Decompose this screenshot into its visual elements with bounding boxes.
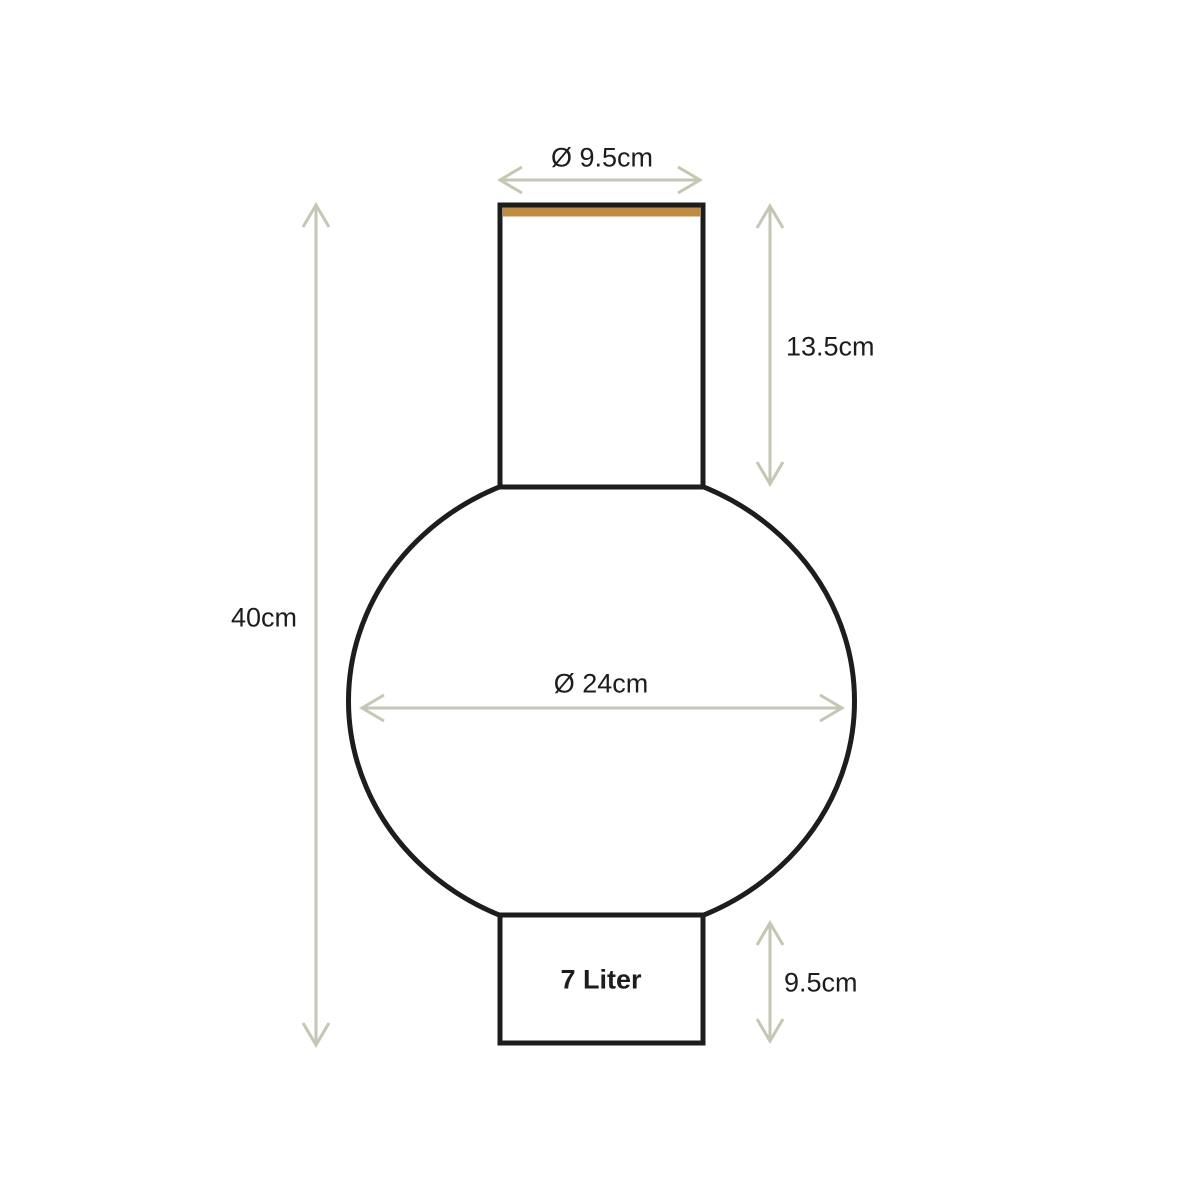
vase-neck-outline	[500, 205, 703, 487]
total-height-label: 40cm	[231, 605, 297, 632]
base-height-arrow	[757, 923, 783, 1041]
vase-rim-accent	[503, 208, 700, 217]
volume-label: 7 Liter	[560, 967, 641, 994]
neck-height-arrow	[757, 206, 783, 484]
total-height-arrow	[303, 205, 329, 1045]
base-height-label: 9.5cm	[784, 970, 858, 997]
neck-height-label: 13.5cm	[786, 334, 875, 361]
vase-dimension-diagram: Ø 9.5cm 13.5cm 40cm Ø 24cm 9.5cm 7 Liter	[0, 0, 1200, 1200]
vase-body-outline	[349, 467, 855, 935]
vase-diagram-canvas	[0, 0, 1200, 1200]
top-diameter-label: Ø 9.5cm	[551, 145, 653, 172]
body-diameter-label: Ø 24cm	[554, 671, 649, 698]
